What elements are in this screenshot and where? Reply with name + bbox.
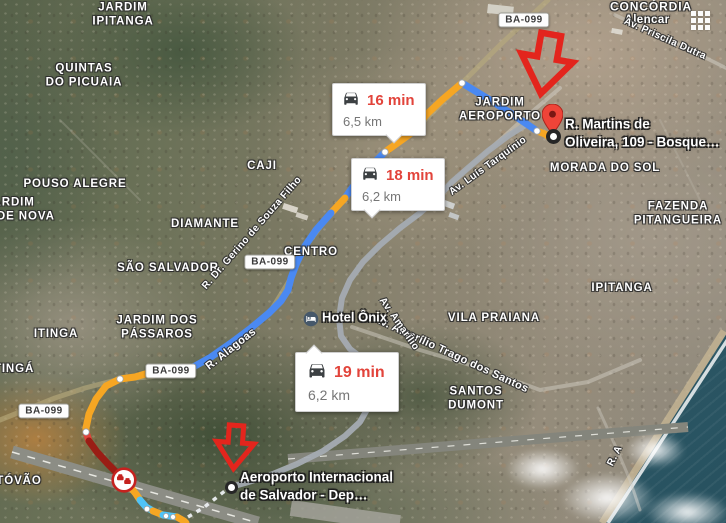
- route-bubble-18min[interactable]: 18 min 6,2 km: [351, 158, 445, 211]
- route-time: 19 min: [334, 364, 385, 382]
- place-label: DIAMANTE: [171, 217, 239, 231]
- cloud: [625, 432, 685, 468]
- route-shield-ba099: BA-099: [244, 255, 295, 270]
- route-shield-ba099: BA-099: [498, 13, 549, 28]
- place-label: ITINGA: [34, 327, 78, 341]
- place-label: ITINGÁ: [0, 362, 34, 376]
- place-label: VILA PRAIANA: [448, 311, 540, 325]
- car-icon: [307, 360, 327, 385]
- arrow-down-airport: [215, 424, 255, 470]
- place-label: IPITANGA: [591, 281, 652, 295]
- route-time: 18 min: [386, 167, 434, 184]
- place-label: MORADA DO SOL: [550, 161, 660, 175]
- place-label: JARDIM DOS PÁSSAROS: [116, 314, 197, 343]
- origin-label[interactable]: Aeroporto Internacional de Salvador - De…: [240, 468, 393, 503]
- origin-endpoint: [225, 481, 238, 494]
- hotel-label[interactable]: Hotel Ônix: [322, 310, 387, 327]
- map-canvas[interactable]: JARDIM IPITANGA QUINTAS DO PICUAIA POUSO…: [0, 0, 726, 523]
- route-shield-ba099: BA-099: [145, 364, 196, 379]
- route-distance: 6,5 km: [343, 114, 415, 129]
- route-time: 16 min: [367, 92, 415, 109]
- place-label: JARDIM AEROPORTO: [459, 96, 541, 125]
- place-label: JARDIM CIDADE NOVA: [0, 196, 55, 225]
- route-shield-ba099: BA-099: [18, 404, 69, 419]
- route-bubble-16min[interactable]: 16 min 6,5 km: [332, 83, 426, 136]
- apps-grid-icon[interactable]: [691, 11, 710, 30]
- place-label: FAZENDA PITANGUEIRA: [634, 200, 722, 229]
- cloud: [645, 492, 726, 523]
- place-label: CAJI: [247, 159, 277, 173]
- car-icon: [342, 89, 360, 112]
- destination-endpoint: [546, 129, 561, 144]
- route-distance: 6,2 km: [308, 387, 385, 403]
- place-label: SÃO SALVADOR: [117, 261, 219, 275]
- arrow-down-destination: [515, 30, 577, 98]
- cloud: [560, 472, 655, 523]
- route-seg-orange: [177, 517, 186, 523]
- place-label: JARDIM IPITANGA: [92, 1, 153, 30]
- destination-label[interactable]: R. Martins de Oliveira, 109 - Bosque…: [565, 115, 720, 150]
- place-label: POUSO ALEGRE: [23, 177, 126, 191]
- hotel-icon[interactable]: [303, 311, 319, 332]
- car-icon: [361, 164, 379, 187]
- route-bubble-19min[interactable]: 19 min 6,2 km: [295, 352, 399, 412]
- place-label: QUINTAS DO PICUAIA: [46, 62, 123, 91]
- traffic-congestion-icon: [111, 467, 137, 498]
- place-label: TÓVÃO: [0, 474, 42, 488]
- place-label: SANTOS DUMONT: [448, 385, 504, 414]
